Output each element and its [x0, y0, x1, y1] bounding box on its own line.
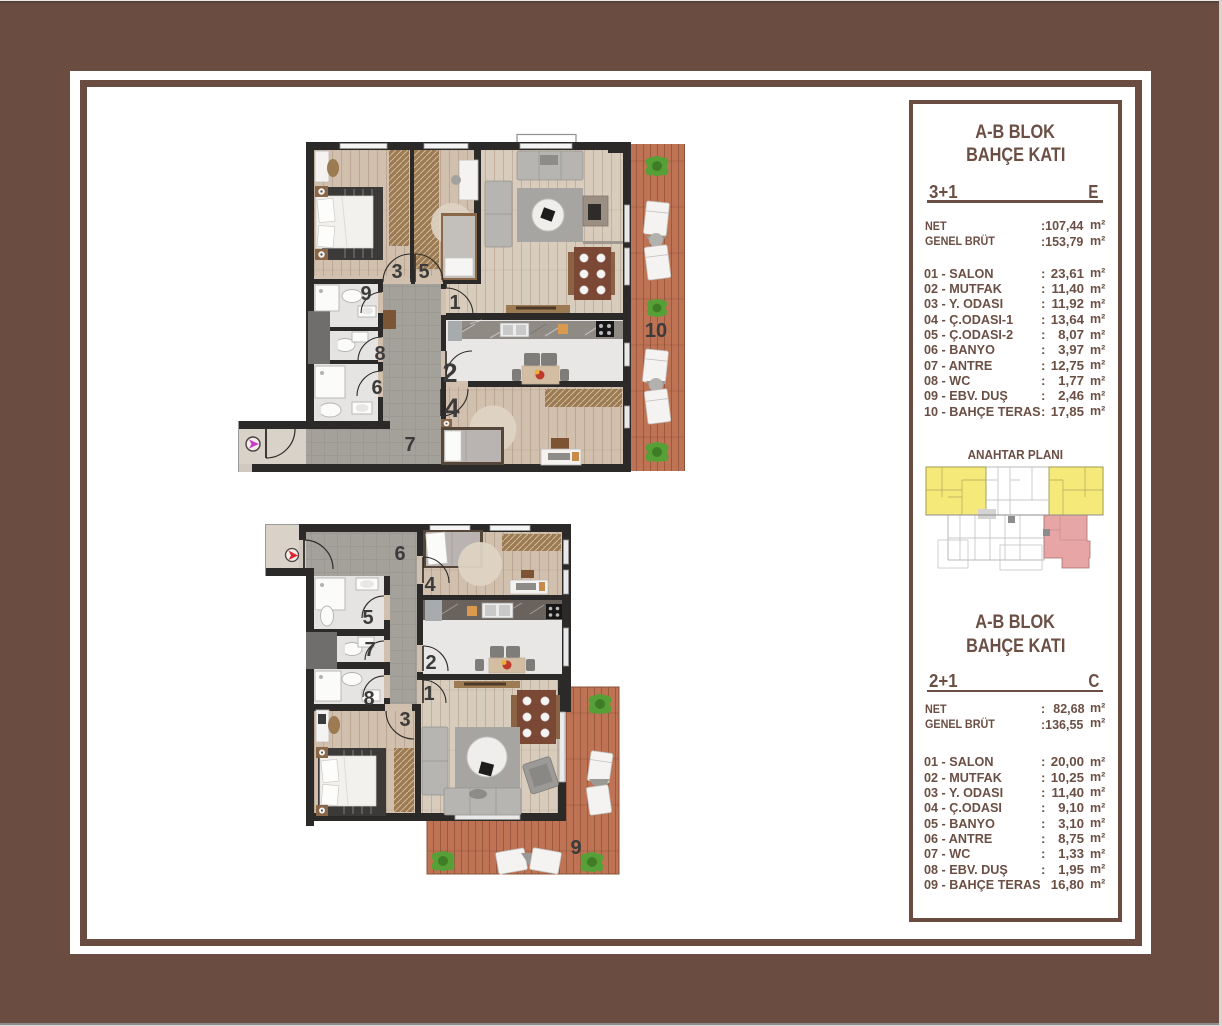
- svg-text:6: 6: [394, 543, 405, 565]
- svg-text:1: 1: [423, 683, 434, 705]
- svg-text:8: 8: [363, 688, 374, 710]
- svg-text:7: 7: [364, 639, 375, 661]
- svg-text:3: 3: [399, 709, 410, 731]
- svg-text:4: 4: [424, 574, 436, 596]
- svg-text:2: 2: [425, 652, 436, 674]
- svg-text:7: 7: [404, 434, 415, 456]
- svg-text:5: 5: [362, 607, 373, 629]
